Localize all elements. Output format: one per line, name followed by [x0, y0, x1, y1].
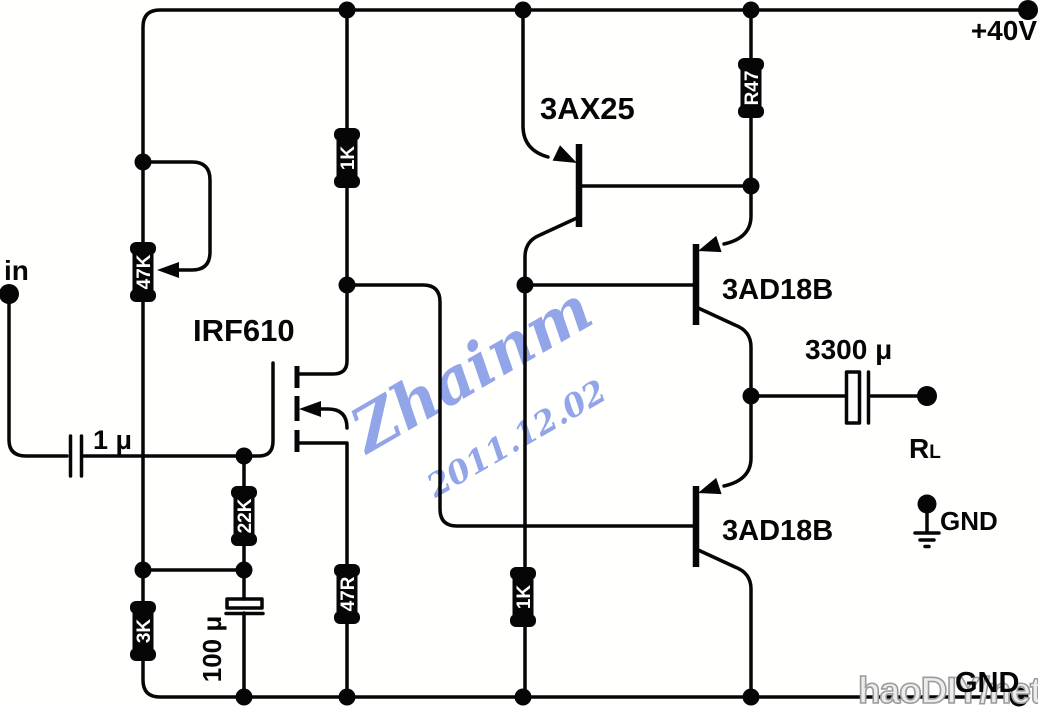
- ground-label-mid: GND: [940, 506, 998, 536]
- resistor-r47-value: R47: [742, 71, 763, 106]
- load-label-main: R: [909, 433, 929, 464]
- supply-label: +40V: [971, 15, 1037, 46]
- mosfet-label: IRF610: [193, 313, 295, 348]
- output-cap-label: 3300 μ: [805, 334, 892, 365]
- q1-label: 3AX25: [540, 91, 635, 126]
- input-cap-label: 1 μ: [93, 425, 132, 455]
- output-terminal: [917, 386, 937, 406]
- resistor-1k-top: 1K: [334, 128, 360, 188]
- ground-label-bottom: GND: [955, 667, 1019, 699]
- resistor-47r: 47R: [334, 564, 360, 624]
- q3-label: 3AD18B: [722, 274, 833, 306]
- resistor-1k-bottom-value: 1K: [514, 585, 535, 610]
- resistor-47k-value: 47K: [134, 254, 155, 289]
- resistor-1k-bottom: 1K: [510, 567, 536, 627]
- resistor-3k: 3K: [130, 601, 156, 661]
- load-label-sub: L: [929, 442, 941, 463]
- schematic-canvas: Zhainm 2011.12.02: [0, 0, 1038, 709]
- resistor-r47: R47: [738, 58, 764, 118]
- resistor-1k-top-value: 1K: [338, 146, 359, 171]
- bypass-cap-label: 100 μ: [197, 616, 227, 683]
- input-label: in: [4, 255, 29, 286]
- resistor-22k: 22K: [231, 486, 257, 546]
- schematic-page: Zhainm 2011.12.02: [0, 0, 1038, 709]
- ground-terminal-mid: [918, 495, 937, 514]
- resistor-47r-value: 47R: [338, 576, 359, 611]
- resistor-3k-value: 3K: [134, 619, 155, 644]
- resistor-22k-value: 22K: [235, 498, 256, 533]
- resistor-47k: 47K: [130, 242, 156, 302]
- q4-label: 3AD18B: [722, 515, 833, 547]
